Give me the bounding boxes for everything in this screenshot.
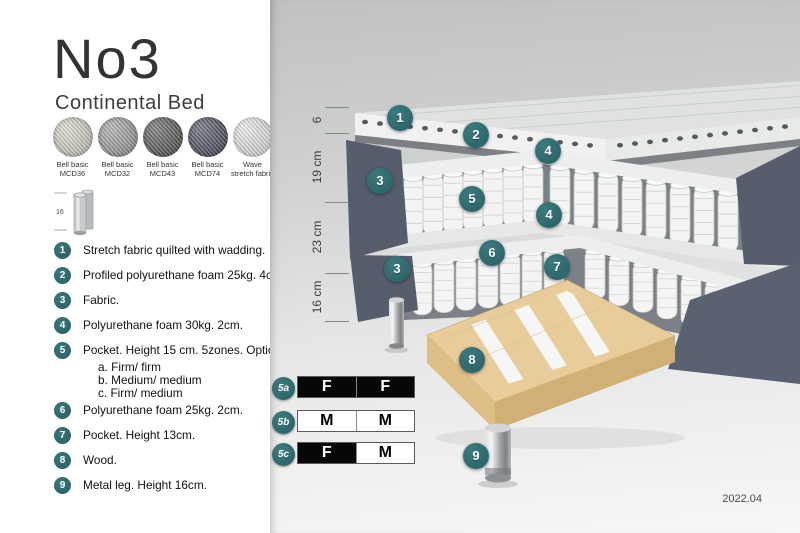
spec-text: Polyurethane foam 25kg. 2cm. <box>83 402 243 419</box>
fabric-swatch-label: Bell basic MCD74 <box>185 160 230 178</box>
spec-number-badge: 9 <box>54 477 71 494</box>
spec-text: Metal leg. Height 16cm. <box>83 477 207 494</box>
callout-1: 1 <box>387 105 413 131</box>
callout-4-lower: 4 <box>536 202 562 228</box>
fabric-swatch-label: Wave stretch fabric <box>230 160 275 178</box>
firmness-row-5c: F M <box>297 442 415 464</box>
callout-7: 7 <box>544 254 570 280</box>
fabric-swatch-circle <box>53 117 93 157</box>
spec-number-badge: 8 <box>54 452 71 469</box>
leg-pictogram <box>74 190 93 235</box>
info-panel: No3 Continental Bed Bell basic MCD36 Bel… <box>0 0 270 533</box>
product-title: No3 <box>53 26 162 91</box>
fabric-swatch-circle <box>98 117 138 157</box>
firmness-option-5c-badge: 5c <box>272 443 295 466</box>
spec-option: c. Firm/ medium <box>98 387 270 400</box>
fabric-swatches: Bell basic MCD36 Bell basic MCD32 Bell b… <box>50 117 275 178</box>
measurement-label-topper: 6 <box>310 117 324 124</box>
spec-text: Pocket. Height 13cm. <box>83 427 195 444</box>
spec-number-badge: 7 <box>54 427 71 444</box>
firmness-cell: F <box>298 443 356 463</box>
version-date: 2022.04 <box>722 493 762 505</box>
spec-text: Fabric. <box>83 292 119 309</box>
fabric-swatch-wave: Wave stretch fabric <box>230 117 275 178</box>
fabric-swatch-label: Bell basic MCD43 <box>140 160 185 178</box>
ruler-tick <box>325 133 349 134</box>
measurement-label-leg: 16 cm <box>310 281 324 314</box>
fabric-swatch-mcd36: Bell basic MCD36 <box>50 117 95 178</box>
spec-number-badge: 6 <box>54 402 71 419</box>
fabric-swatch-mcd32: Bell basic MCD32 <box>95 117 140 178</box>
spec-text: Polyurethane foam 30kg. 2cm. <box>83 317 243 334</box>
spec-item-6: 6 Polyurethane foam 25kg. 2cm. <box>54 402 270 419</box>
callout-6: 6 <box>479 240 505 266</box>
spec-item-7: 7 Pocket. Height 13cm. <box>54 427 270 444</box>
firmness-cell: F <box>298 377 356 397</box>
ruler-tick <box>325 107 349 108</box>
spec-item-3: 3 Fabric. <box>54 292 270 309</box>
ruler-tick <box>325 321 349 322</box>
firmness-option-5a-badge: 5a <box>272 377 295 400</box>
fabric-swatch-label: Bell basic MCD36 <box>50 160 95 178</box>
metal-leg-left <box>389 297 404 349</box>
firmness-cell: M <box>356 411 415 431</box>
spec-number-badge: 3 <box>54 292 71 309</box>
fabric-swatch-mcd74: Bell basic MCD74 <box>185 117 230 178</box>
measurement-label-upper: 19 cm <box>310 151 324 184</box>
ruler-tick <box>325 273 349 274</box>
metal-leg-front <box>485 424 511 483</box>
callout-9: 9 <box>463 443 489 469</box>
firmness-cell: M <box>356 443 415 463</box>
spec-item-5: 5 Pocket. Height 15 cm. 5zones. Option: <box>54 342 270 359</box>
callout-2: 2 <box>463 122 489 148</box>
spec-number-badge: 2 <box>54 267 71 284</box>
spec-text: Stretch fabric quilted with wadding. <box>83 242 265 259</box>
firmness-row-5a: F F <box>297 376 415 398</box>
spec-item-8: 8 Wood. <box>54 452 270 469</box>
spec-list: 1 Stretch fabric quilted with wadding. 2… <box>54 242 270 502</box>
spec-item-9: 9 Metal leg. Height 16cm. <box>54 477 270 494</box>
spec-item-1: 1 Stretch fabric quilted with wadding. <box>54 242 270 259</box>
callout-8: 8 <box>459 347 485 373</box>
spec-number-badge: 1 <box>54 242 71 259</box>
leg-height-icon: 16 <box>50 185 112 237</box>
spec-item-4: 4 Polyurethane foam 30kg. 2cm. <box>54 317 270 334</box>
callout-5: 5 <box>459 186 485 212</box>
callout-3-upper: 3 <box>367 168 393 194</box>
fabric-swatch-mcd43: Bell basic MCD43 <box>140 117 185 178</box>
firmness-option-5b-badge: 5b <box>272 411 295 434</box>
fabric-swatch-circle <box>233 117 273 157</box>
callout-4-upper: 4 <box>535 138 561 164</box>
spec-number-badge: 4 <box>54 317 71 334</box>
firmness-cell: M <box>298 411 356 431</box>
spec-number-badge: 5 <box>54 342 71 359</box>
callout-3-lower: 3 <box>384 256 410 282</box>
diagram-panel: 6 19 cm 23 cm 16 cm 1 2 4 3 5 4 6 7 3 8 … <box>270 0 800 533</box>
spec-sheet: No3 Continental Bed Bell basic MCD36 Bel… <box>0 0 800 533</box>
spec-item-2: 2 Profiled polyurethane foam 25kg. 4cm. <box>54 267 270 284</box>
fabric-swatch-label: Bell basic MCD32 <box>95 160 140 178</box>
mattress-topper <box>350 30 800 169</box>
firmness-cell: F <box>356 377 415 397</box>
spec-text: Profiled polyurethane foam 25kg. 4cm. <box>83 267 285 284</box>
spec-text: Wood. <box>83 452 117 469</box>
measurement-label-middle: 23 cm <box>310 221 324 254</box>
product-subtitle: Continental Bed <box>55 92 205 115</box>
firmness-row-5b: M M <box>297 410 415 432</box>
ruler-tick <box>325 202 349 203</box>
fabric-swatch-circle <box>143 117 183 157</box>
spec-text: Pocket. Height 15 cm. 5zones. Option: <box>83 342 284 359</box>
fabric-swatch-circle <box>188 117 228 157</box>
spec-item-5-options: a. Firm/ firm b. Medium/ medium c. Firm/… <box>98 361 270 400</box>
leg-height-value: 16 <box>56 209 64 216</box>
